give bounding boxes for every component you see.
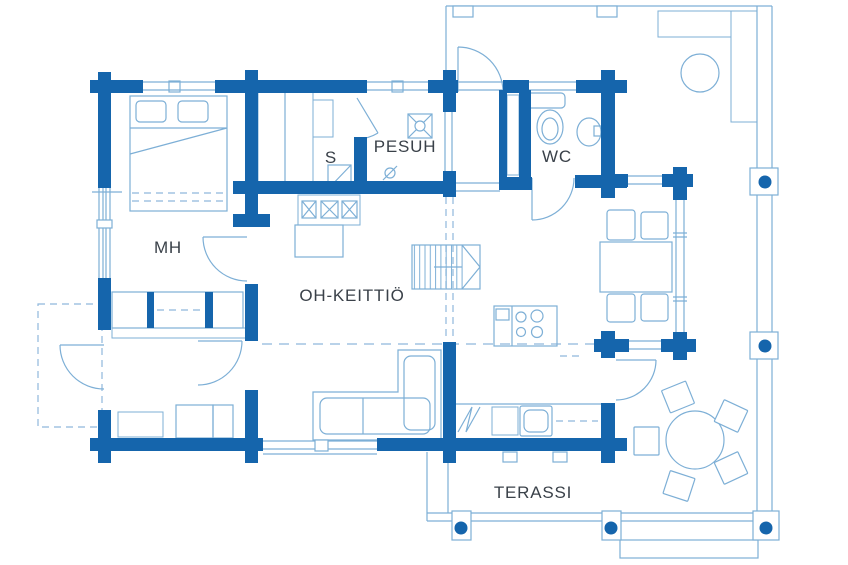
- window-nook-south: [629, 341, 661, 349]
- wall-segment: [245, 70, 258, 227]
- floor-plan-canvas: MH S PESUH WC OH-KEITTIÖ TERASSI: [0, 0, 848, 565]
- wall-segment: [354, 137, 367, 194]
- window-nook-north: [628, 176, 662, 184]
- dining-chair: [641, 212, 668, 239]
- optional-porch-dashed: [38, 304, 102, 427]
- dining-table: [600, 242, 672, 292]
- room-label-terassi: TERASSI: [494, 483, 572, 502]
- window-bottom-wall: [263, 440, 377, 454]
- wc-door: [532, 178, 574, 220]
- bedroom-door: [203, 237, 247, 281]
- patio-chair: [663, 471, 695, 502]
- wall-segment: [519, 90, 531, 178]
- bench-chest: [118, 412, 163, 437]
- walls: [90, 70, 696, 463]
- terrace-bench-right: [731, 11, 757, 122]
- wardrobe-row: [112, 292, 257, 338]
- wall-segment: [98, 72, 111, 188]
- wall-segment: [601, 331, 615, 358]
- patio-table-set: [634, 381, 748, 501]
- post-dot: [759, 176, 772, 189]
- window-nook-east: [673, 200, 687, 332]
- dining-chair: [641, 294, 668, 321]
- lower-room-furniture: [118, 405, 233, 438]
- wall-segment: [601, 70, 615, 198]
- pillow: [178, 101, 208, 122]
- post-dot: [455, 522, 468, 535]
- lower-room-door: [198, 341, 242, 385]
- room-label-mh: MH: [154, 238, 182, 257]
- wall-segment: [377, 438, 627, 451]
- bed-foot-dashes: [132, 193, 226, 201]
- doors-layer: [60, 47, 656, 400]
- dining-set: [600, 210, 672, 322]
- wall-segment: [443, 171, 456, 197]
- corner-sofa: [313, 350, 441, 440]
- porch-post-notch: [597, 6, 617, 17]
- wall-segment: [233, 214, 270, 227]
- room-label-sauna: S: [325, 148, 337, 167]
- loft-stairs: [412, 245, 480, 289]
- room-label-wc: WC: [542, 147, 572, 166]
- wall-segment: [245, 390, 258, 463]
- deck-joist-tab: [503, 452, 517, 462]
- post-dot: [759, 340, 772, 353]
- wall-segment: [245, 284, 258, 341]
- wall-segment: [98, 410, 111, 463]
- window-pesuh-top: [367, 81, 428, 92]
- porch-post-notch: [453, 6, 473, 17]
- fireplace: [295, 195, 360, 257]
- wall-segment: [499, 90, 507, 178]
- floor-drain-shower: [383, 166, 397, 180]
- patio-chair: [661, 381, 694, 413]
- wc-sink: [577, 118, 603, 146]
- wall-segment: [443, 70, 456, 112]
- cooktop-burner: [516, 312, 526, 322]
- room-label-pesuh: PESUH: [374, 137, 437, 156]
- room-label-oh-keittio: OH-KEITTIÖ: [299, 286, 404, 305]
- entry-door-threshold: [458, 82, 503, 90]
- cooktop-burner: [532, 327, 543, 338]
- sauna-door: [357, 98, 378, 139]
- sauna-benches: [258, 92, 333, 188]
- window-left-wall: [92, 188, 122, 278]
- hearth: [295, 225, 343, 257]
- wall-segment: [90, 80, 143, 93]
- dining-chair: [607, 210, 635, 240]
- wall-segment: [215, 80, 367, 93]
- sliding-door-track: [112, 328, 257, 338]
- wall-segment: [601, 403, 615, 463]
- terrace-door: [616, 360, 656, 400]
- wall-segment: [98, 278, 111, 330]
- terrace-furniture: [634, 11, 757, 501]
- closet-divider: [205, 292, 213, 328]
- loft-ladder: [507, 95, 519, 175]
- patio-chair: [714, 400, 748, 433]
- kitchen-counter: [456, 404, 601, 436]
- post-dot: [605, 522, 618, 535]
- pillow: [136, 101, 166, 122]
- entry-door: [458, 47, 503, 92]
- hall-opening-threshold: [456, 183, 500, 191]
- post-dot: [760, 522, 773, 535]
- wall-segment: [90, 438, 263, 451]
- dishwasher: [492, 407, 518, 435]
- double-bed: [130, 96, 227, 211]
- window-mh-top: [143, 81, 215, 92]
- terrace-round-table-small: [681, 54, 719, 92]
- deck-joist-tab: [553, 452, 567, 462]
- patio-chair: [634, 427, 659, 455]
- terrace-bench-top: [658, 11, 731, 37]
- terrace-step: [620, 540, 758, 558]
- closet-divider: [147, 292, 154, 328]
- wall-segment: [661, 339, 696, 352]
- exterior-side-door: [60, 345, 104, 389]
- washing-machine: [408, 114, 432, 138]
- wall-segment: [673, 167, 687, 200]
- wall-segment: [233, 181, 456, 194]
- pesuh-door-opening: [445, 112, 452, 171]
- kitchen-island: [494, 306, 557, 346]
- wall-segment: [614, 174, 628, 187]
- cooktop-burner: [517, 328, 526, 337]
- wall-segment: [499, 177, 532, 190]
- window-wc-top: [529, 82, 576, 90]
- cooktop-burner: [531, 310, 543, 322]
- dining-chair: [607, 294, 635, 322]
- floor-plan-image: MH S PESUH WC OH-KEITTIÖ TERASSI: [0, 0, 848, 565]
- fridge-symbol: [458, 407, 480, 432]
